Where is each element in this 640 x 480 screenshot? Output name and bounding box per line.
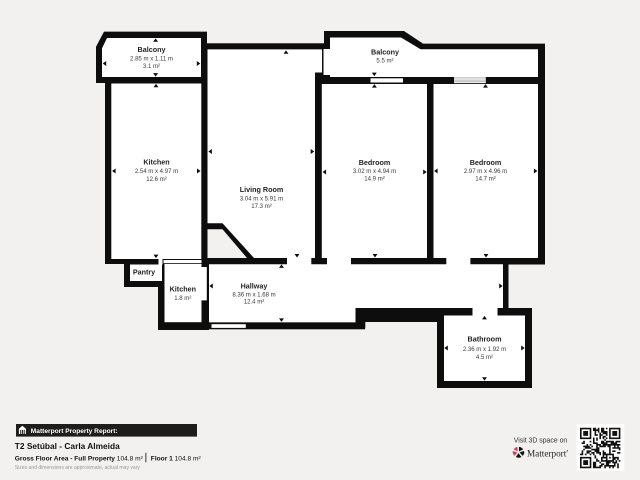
svg-text:Pantry: Pantry	[133, 268, 155, 277]
svg-text:Bedroom: Bedroom	[470, 158, 502, 167]
svg-text:1.8 m²: 1.8 m²	[174, 296, 191, 302]
svg-text:Bedroom: Bedroom	[359, 158, 391, 167]
svg-text:3.04 m x 5.91 m: 3.04 m x 5.91 m	[240, 197, 283, 203]
svg-text:2.85 m x 1.11 m: 2.85 m x 1.11 m	[130, 56, 173, 62]
svg-text:Gross Floor Area - Full Proper: Gross Floor Area - Full Property 104.8 m…	[15, 455, 144, 462]
svg-text:Balcony: Balcony	[371, 47, 399, 56]
svg-text:Hallway: Hallway	[241, 281, 268, 290]
svg-text:2.97 m x 4.96 m: 2.97 m x 4.96 m	[464, 169, 507, 175]
svg-text:12.6 m²: 12.6 m²	[146, 177, 167, 183]
svg-text:2.36 m x 1.92 m: 2.36 m x 1.92 m	[463, 347, 506, 353]
svg-text:Matterport Property Report:: Matterport Property Report:	[31, 428, 118, 435]
svg-text:Balcony: Balcony	[138, 45, 166, 54]
svg-text:Bathroom: Bathroom	[468, 335, 502, 344]
svg-text:17.3 m²: 17.3 m²	[251, 204, 272, 210]
svg-text:2.54 m x 4.97 m: 2.54 m x 4.97 m	[135, 169, 178, 175]
svg-text:Floor 1 104.8 m²: Floor 1 104.8 m²	[151, 455, 202, 462]
svg-text:Living Room: Living Room	[240, 185, 284, 194]
svg-text:3.1 m²: 3.1 m²	[143, 64, 160, 70]
svg-text:4.5 m²: 4.5 m²	[476, 355, 493, 361]
svg-text:Kitchen: Kitchen	[170, 285, 196, 294]
svg-text:T2 Setúbal - Carla Almeida: T2 Setúbal - Carla Almeida	[15, 441, 120, 451]
svg-text:8.36 m x 1.68 m: 8.36 m x 1.68 m	[232, 292, 275, 298]
svg-text:14.9 m²: 14.9 m²	[364, 176, 385, 182]
svg-text:14.7 m²: 14.7 m²	[475, 176, 496, 182]
svg-text:3.02 m x 4.94 m: 3.02 m x 4.94 m	[353, 169, 396, 175]
svg-text:5.5 m²: 5.5 m²	[376, 59, 393, 65]
svg-text:Visit 3D space on: Visit 3D space on	[514, 438, 568, 445]
svg-text:12.4 m²: 12.4 m²	[244, 300, 265, 306]
svg-text:Kitchen: Kitchen	[143, 157, 169, 166]
svg-text:Matterport′: Matterport′	[527, 448, 568, 458]
svg-text:Sizes and dimensions are appro: Sizes and dimensions are approximate, ac…	[15, 465, 141, 471]
